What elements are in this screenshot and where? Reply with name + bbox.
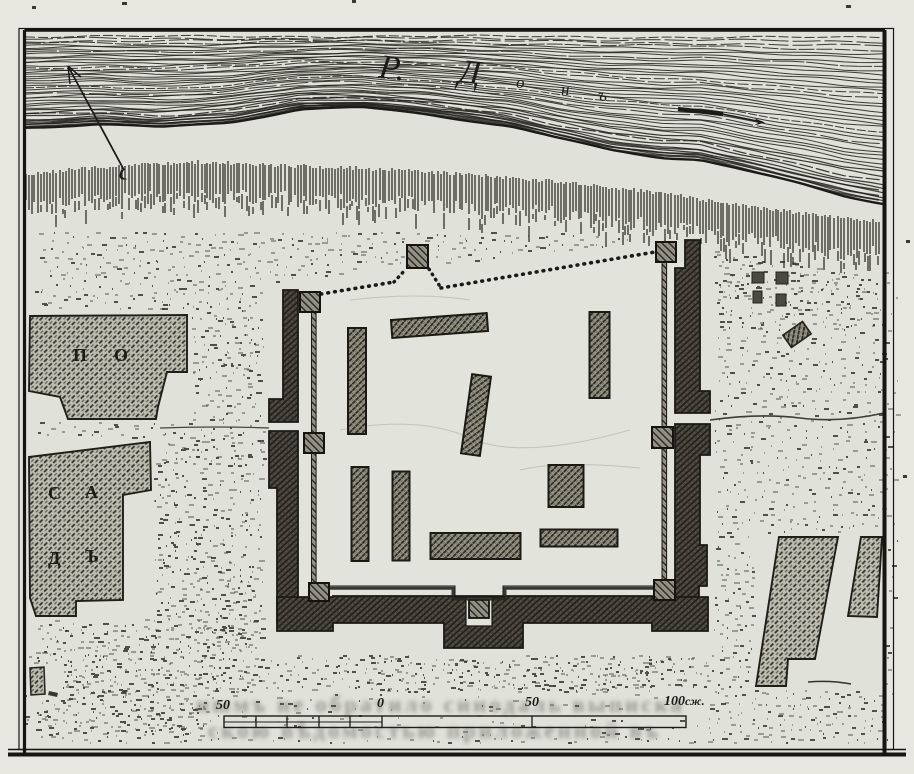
svg-text:н: н xyxy=(561,80,569,99)
svg-text:нымъ не обратило синодаль выпи: нымъ не обратило синодаль выписка xyxy=(196,692,685,717)
svg-text:50: 50 xyxy=(216,698,230,713)
svg-text:Д: Д xyxy=(48,548,61,568)
svg-text:О: О xyxy=(114,345,128,365)
svg-text:100сж.: 100сж. xyxy=(664,694,705,709)
svg-text:о: о xyxy=(516,73,525,92)
svg-text:50: 50 xyxy=(525,695,539,710)
svg-text:С: С xyxy=(48,483,61,503)
svg-text:0: 0 xyxy=(377,696,384,711)
svg-text:ъ: ъ xyxy=(598,86,607,105)
svg-text:А: А xyxy=(85,482,98,502)
svg-text:П: П xyxy=(73,345,87,365)
svg-text:Р.: Р. xyxy=(376,48,408,88)
svg-text:Ъ: Ъ xyxy=(85,546,99,566)
